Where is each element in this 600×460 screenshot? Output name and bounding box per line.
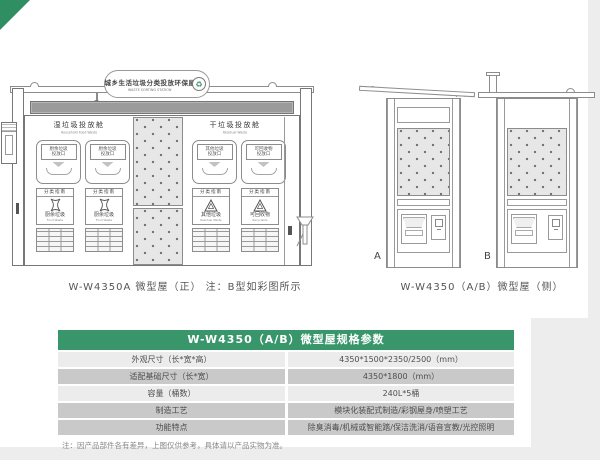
collection-hatch xyxy=(511,214,537,244)
control-screen xyxy=(435,219,443,227)
sorting-guide-sign: 分类指南 厨余垃圾 Food Waste xyxy=(36,188,74,225)
louver-vent xyxy=(36,228,74,252)
door-plate-line: 投放口 xyxy=(208,152,222,158)
food-waste-icon xyxy=(86,197,122,212)
control-screen xyxy=(552,219,560,227)
door-plate-line: 投放口 xyxy=(257,152,271,158)
frame-line xyxy=(284,117,285,265)
speckled-glass-panel xyxy=(397,128,450,196)
side-b-body xyxy=(496,98,578,268)
banner-title: 城乡生活垃圾分类投放环保屋 xyxy=(105,77,196,87)
door-plate-line: 投放口 xyxy=(52,152,66,158)
chute-hopper xyxy=(46,168,72,175)
lower-panel xyxy=(507,209,567,253)
deposit-door: 其他垃圾 投放口 xyxy=(192,140,237,184)
canopy-roof xyxy=(359,86,475,97)
recyclable-icon xyxy=(242,197,278,212)
wall-box-panel xyxy=(5,135,13,155)
wet-waste-section: 湿垃圾投放舱 Household Food Waste 厨余垃圾 投放口 厨余垃… xyxy=(30,118,128,264)
section-subtitle: Household Food Waste xyxy=(40,131,118,135)
dry-waste-section: 干垃圾投放舱 Residual Waste 其他垃圾 投放口 可回收物 投放口 xyxy=(186,118,284,264)
station-banner: 城乡生活垃圾分类投放环保屋 WASTE SORTING STATION ♻ xyxy=(104,70,210,98)
frame-post xyxy=(387,99,395,267)
spec-table-title: W-W4350（A/B）微型屋规格参数 xyxy=(58,330,514,350)
spec-value: 240L*5桶 xyxy=(288,386,514,401)
control-button xyxy=(437,229,441,230)
page-margin xyxy=(588,0,600,460)
sign-header: 分类指南 xyxy=(242,189,278,197)
side-a-body xyxy=(386,98,461,268)
recycle-logo-icon: ♻ xyxy=(192,77,206,91)
section-title: 湿垃圾投放舱 xyxy=(30,120,128,130)
table-row: 容量（桶数） 240L*5桶 xyxy=(58,386,514,401)
downspout xyxy=(296,216,316,266)
sign-label: 其他垃圾 xyxy=(193,212,229,218)
recyclable-icon xyxy=(193,197,229,212)
sign-header: 分类指南 xyxy=(193,189,229,197)
wall-control-box xyxy=(1,122,17,164)
chute-arrow-icon xyxy=(209,162,221,167)
table-row: 功能特点 除臭消毒/机械或智能踏/保洁洗消/语音宣教/光控照明 xyxy=(58,420,514,435)
control-panel xyxy=(548,215,563,240)
spec-label: 外观尺寸（长*宽*高） xyxy=(58,352,285,367)
sign-sublabel: Recyclable xyxy=(246,218,275,221)
frame-post xyxy=(452,99,460,267)
deposit-door: 可回收物 投放口 xyxy=(241,140,286,184)
spec-value: 模块化装配式制造/彩钢屋身/喷塑工艺 xyxy=(288,403,514,418)
collection-hatch xyxy=(401,214,427,244)
side-b-label: B xyxy=(484,251,491,262)
chute-hopper xyxy=(251,168,277,175)
sign-label: 厨余垃圾 xyxy=(86,212,122,218)
sign-sublabel: Residual Waste xyxy=(197,218,226,221)
banner-subtitle: WASTE SORTING STATION xyxy=(128,87,172,91)
sorting-guide-sign: 分类指南 厨余垃圾 Food Waste xyxy=(85,188,123,225)
control-button xyxy=(554,229,558,230)
spec-value: 4350*1500*2350/2500（mm） xyxy=(288,352,514,367)
speckled-glass-panel xyxy=(507,128,567,196)
section-title: 干垃圾投放舱 xyxy=(186,120,284,130)
frame-post xyxy=(497,99,505,267)
chute-hopper xyxy=(202,168,228,175)
ad-strip xyxy=(30,101,294,114)
door-plate: 其他垃圾 投放口 xyxy=(197,144,233,160)
table-row: 制造工艺 模块化装配式制造/彩钢屋身/喷塑工艺 xyxy=(58,403,514,418)
louver-vent xyxy=(192,228,230,252)
door-plate: 可回收物 投放口 xyxy=(246,144,282,160)
spec-label: 制造工艺 xyxy=(58,403,285,418)
hatch-lid xyxy=(513,217,535,228)
sorting-guide-sign: 分类指南 可回收物 Recyclable xyxy=(241,188,279,225)
transom-panel xyxy=(397,107,450,123)
side-view-caption: W-W4350（A/B）微型屋（侧） xyxy=(392,278,572,293)
deposit-door: 厨余垃圾 投放口 xyxy=(36,140,81,184)
product-spec-sheet: 城乡生活垃圾分类投放环保屋 WASTE SORTING STATION ♻ 湿垃… xyxy=(0,0,600,460)
control-panel xyxy=(431,215,446,240)
table-footnote: 注：因产品部件各有差异，上图仅供参考，具体请以产品实物为准。 xyxy=(62,440,287,451)
hatch-lid xyxy=(403,217,425,228)
frame-band xyxy=(507,199,567,206)
chute-hopper xyxy=(95,168,121,175)
frame-post xyxy=(569,99,577,267)
table-row: 适配基础尺寸（长*宽） 4350*1800（mm） xyxy=(58,369,514,384)
deposit-door: 厨余垃圾 投放口 xyxy=(85,140,130,184)
corner-ribbon xyxy=(0,0,30,30)
chute-arrow-icon xyxy=(258,162,270,167)
spec-value: 除臭消毒/机械或智能踏/保洁洗消/语音宣教/光控照明 xyxy=(288,420,514,435)
front-view-caption: W-W4350A 微型屋（正） 注：B型如彩图所示 xyxy=(55,278,315,293)
table-row: 外观尺寸（长*宽*高） 4350*1500*2350/2500（mm） xyxy=(58,352,514,367)
spec-label: 适配基础尺寸（长*宽） xyxy=(58,369,285,384)
roof-bolt xyxy=(30,82,39,87)
wall-box-label xyxy=(2,123,16,132)
roof-bolt xyxy=(268,82,277,87)
section-subtitle: Residual Waste xyxy=(196,131,274,135)
sign-sublabel: Food Waste xyxy=(90,218,119,221)
door-plate-line: 投放口 xyxy=(101,152,115,158)
sign-label: 可回收物 xyxy=(242,212,278,218)
speckled-glass-panel xyxy=(133,117,183,265)
sign-label: 厨余垃圾 xyxy=(37,212,73,218)
side-a-label: A xyxy=(374,251,381,262)
spec-value: 4350*1800（mm） xyxy=(288,369,514,384)
lower-panel xyxy=(397,209,450,253)
door-plate: 厨余垃圾 投放口 xyxy=(41,144,77,160)
hatch-grip xyxy=(405,230,423,236)
sign-header: 分类指南 xyxy=(37,189,73,197)
door-plate: 厨余垃圾 投放口 xyxy=(90,144,126,160)
sign-sublabel: Food Waste xyxy=(41,218,70,221)
left-post xyxy=(12,88,24,266)
flat-roof xyxy=(478,92,595,98)
door-handle xyxy=(288,226,292,235)
sorting-guide-sign: 分类指南 其他垃圾 Residual Waste xyxy=(192,188,230,225)
chute-arrow-icon xyxy=(53,162,65,167)
food-waste-icon xyxy=(37,197,73,212)
frame-band xyxy=(397,199,450,206)
spec-label: 功能特点 xyxy=(58,420,285,435)
sign-header: 分类指南 xyxy=(86,189,122,197)
louver-vent xyxy=(241,228,279,252)
louver-vent xyxy=(85,228,123,252)
hatch-grip xyxy=(515,230,533,236)
spec-label: 容量（桶数） xyxy=(58,386,285,401)
chute-arrow-icon xyxy=(102,162,114,167)
glass-divider xyxy=(133,205,183,209)
door-handle xyxy=(16,203,19,214)
